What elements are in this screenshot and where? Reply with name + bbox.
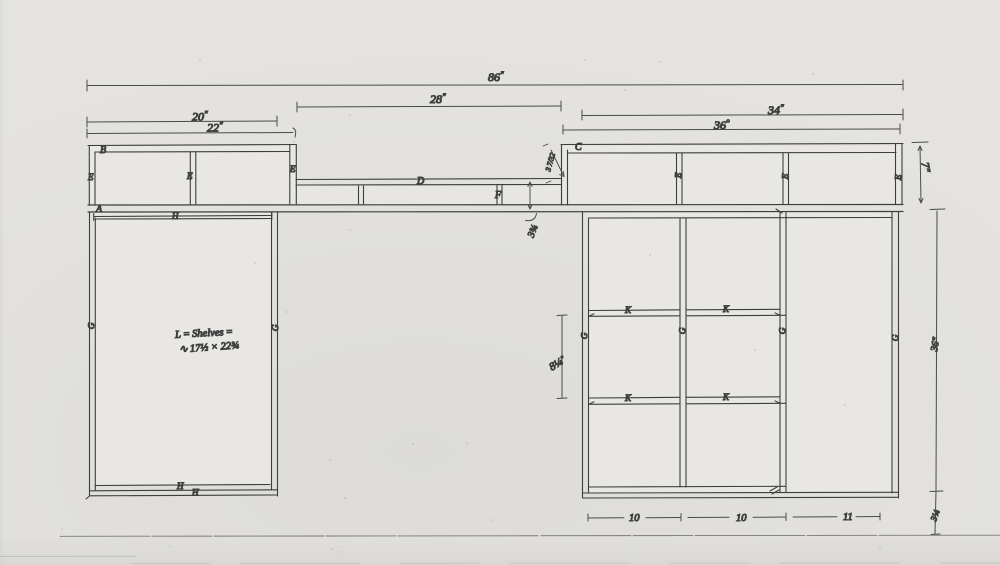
svg-text:11: 11: [843, 512, 853, 523]
svg-text:H: H: [171, 211, 179, 221]
svg-text:H: H: [176, 481, 184, 491]
svg-text:H: H: [191, 488, 199, 498]
svg-text:F: F: [494, 190, 502, 201]
svg-text:D: D: [416, 176, 425, 187]
svg-text:10: 10: [736, 513, 747, 524]
svg-text:K: K: [624, 393, 632, 403]
svg-text:B: B: [100, 145, 106, 156]
svg-text:K: K: [722, 392, 730, 402]
svg-text:10: 10: [629, 513, 640, 524]
svg-text:K: K: [722, 304, 730, 314]
svg-text:E: E: [289, 164, 296, 174]
svg-text:E: E: [87, 172, 94, 182]
svg-text:E: E: [186, 171, 193, 181]
svg-text:K: K: [624, 305, 632, 315]
svg-text:C: C: [575, 142, 582, 153]
